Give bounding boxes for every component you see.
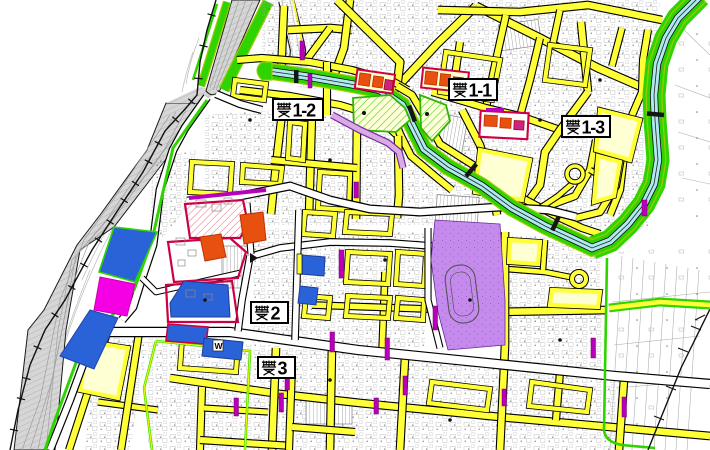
svg-text:1-3: 1-3 (582, 118, 606, 138)
svg-text:W: W (215, 341, 224, 351)
svg-text:1-1: 1-1 (469, 81, 493, 101)
svg-text:1-2: 1-2 (293, 101, 317, 121)
svg-text:2: 2 (271, 304, 281, 324)
svg-text:3: 3 (278, 359, 288, 379)
